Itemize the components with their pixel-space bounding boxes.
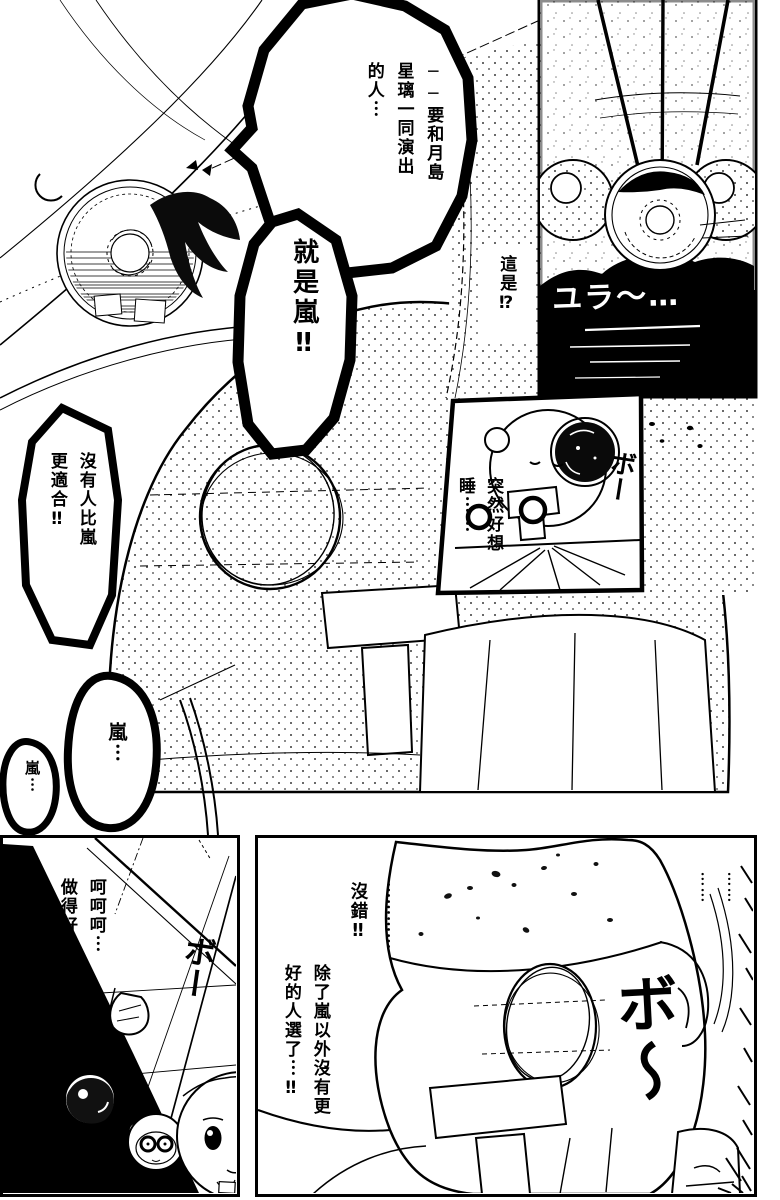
manga-page: ──要和月島 星璃一同演出 的人︙ 就是嵐‼ 這是⁉ 沒有人比嵐 更適合‼ 嵐︙…	[0, 0, 780, 1200]
bubble-arashi-echo-big-text: 嵐︙	[101, 722, 131, 764]
speech-bubble-is-arashi-text: 就是嵐‼	[282, 238, 324, 362]
speech-bubble-cast-text: ──要和月島 星璃一同演出 的人︙	[358, 62, 447, 182]
hypno-disc	[35, 160, 240, 326]
sfx-daze-bottom-left: ボー	[176, 933, 217, 1001]
panel-bottom-left	[0, 835, 240, 1197]
ellipsis-pair-text: ︙︙ ︙︙	[688, 872, 741, 904]
sfx-sway-text: ユラ〜…	[551, 270, 680, 318]
bubble-arashi-echo-small-text: 嵐︙	[20, 760, 44, 794]
panel-hypno-inset	[533, 0, 766, 396]
sleepy-dialogue-text: 突然好想 睡︙︙	[451, 477, 507, 553]
side-sphere-left	[533, 160, 613, 240]
sfx-daze-small: ボー	[602, 448, 636, 503]
sfx-daze-big: ボ〜	[608, 970, 677, 1109]
crescent-mark	[35, 174, 62, 201]
hand	[110, 993, 148, 1035]
bottom-left-art	[3, 838, 236, 1193]
ellipsis-long-text: ︙︙︙︙	[374, 882, 400, 950]
caption-what-is-this: 這是⁉	[492, 255, 519, 315]
bottom-left-dialogue-text: 呵呵呵︙ 做得好～～	[52, 878, 110, 973]
bottom-right-dialogue-text: 除了嵐以外沒有更 好的人選了︙‼	[276, 964, 334, 1116]
speech-bubble-no-one-better-text: 沒有人比嵐 更適合‼	[42, 452, 100, 547]
agree-text: 沒錯‼	[344, 882, 372, 943]
